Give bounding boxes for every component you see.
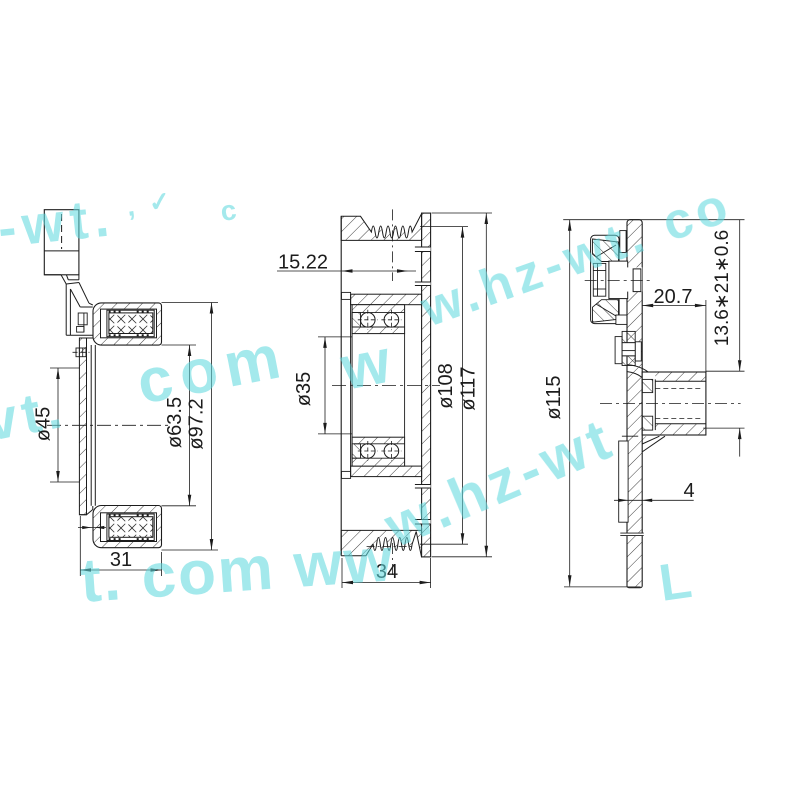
svg-text:13.6∗21∗0.6: 13.6∗21∗0.6 (712, 230, 733, 346)
svg-text:ø108: ø108 (435, 363, 457, 409)
svg-text:4: 4 (683, 480, 694, 502)
svg-text:ø117: ø117 (458, 366, 480, 410)
svg-text:15.22: 15.22 (278, 252, 328, 274)
svg-text:✓: ✓ (147, 185, 173, 218)
svg-text:20.7: 20.7 (654, 286, 693, 308)
svg-text:ø115: ø115 (543, 375, 565, 419)
svg-text:-wt.: -wt. (0, 187, 118, 259)
svg-text:ø35: ø35 (293, 372, 315, 406)
